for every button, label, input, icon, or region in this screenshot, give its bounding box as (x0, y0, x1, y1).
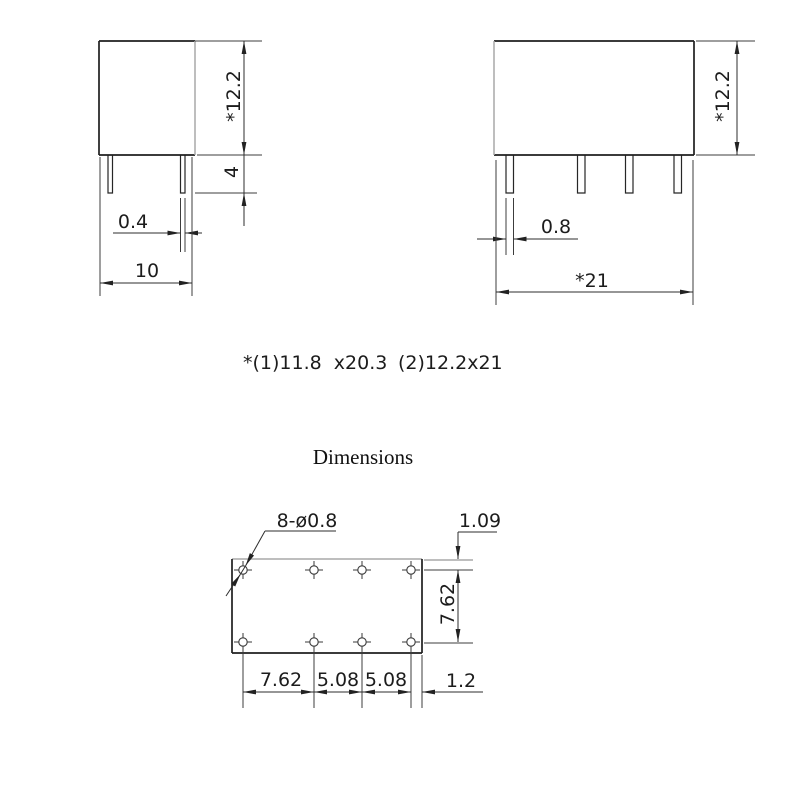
hole-diameter-label: 8-ø0.8 (277, 510, 338, 532)
front-pin-3 (626, 155, 634, 193)
top-offset-label: 1.09 (459, 510, 501, 532)
note-left-text: *(1)11.8 x20.3 (243, 352, 387, 374)
row-spacing-label: 7.62 (437, 583, 459, 625)
right-offset-label: 1.2 (446, 670, 476, 692)
side-body-width-label: 10 (135, 260, 159, 282)
front-pin-4 (674, 155, 682, 193)
front-pin-2 (578, 155, 586, 193)
side-pin-left (108, 155, 113, 193)
col-spacing-label-1: 7.62 (260, 669, 302, 691)
side-pin-right (181, 155, 186, 193)
side-height-label: *12.2 (223, 70, 245, 122)
note-right-text: (2)12.2x21 (398, 352, 503, 374)
side-pin-width-label: 0.4 (118, 211, 148, 233)
front-height-label: *12.2 (712, 70, 734, 122)
front-pin-1 (506, 155, 514, 193)
technical-drawing-page: *12.2 4 0.4 10 (0, 0, 800, 800)
front-pin-width-label: 0.8 (541, 216, 571, 238)
tolerance-note: *(1)11.8 x20.3 (2)12.2x21 (243, 352, 503, 374)
section-title: Dimensions (313, 445, 413, 469)
relay-dimension-drawing: *12.2 4 0.4 10 (0, 0, 800, 800)
col-spacing-label-2: 5.08 (317, 669, 359, 691)
front-body-width-label: *21 (575, 270, 609, 292)
col-spacing-label-3: 5.08 (365, 669, 407, 691)
side-pin-length-label: 4 (221, 166, 243, 178)
